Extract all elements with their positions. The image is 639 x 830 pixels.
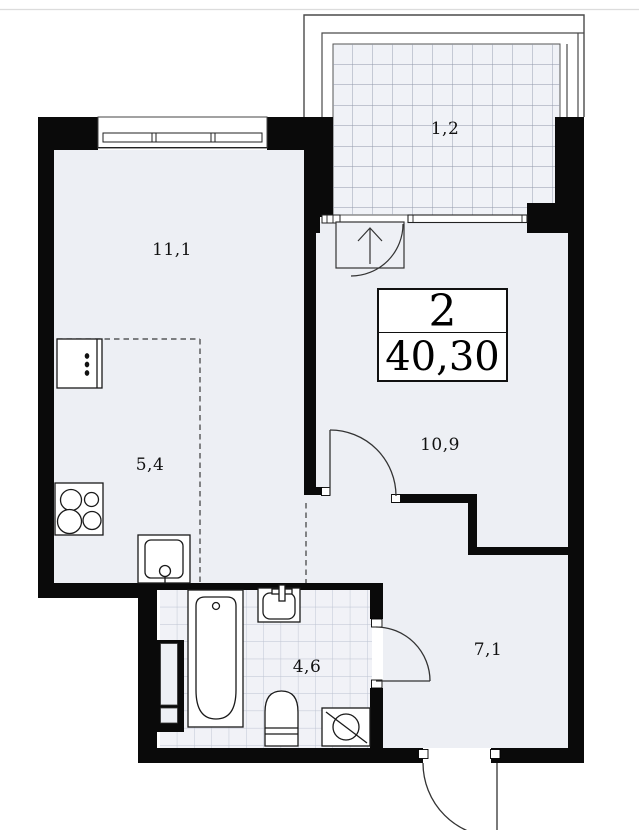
- apartment-info-box: 2 40,30: [377, 288, 508, 382]
- balcony-structure: [304, 15, 584, 215]
- kitchen-area-label: 5,4: [136, 455, 165, 475]
- hallway-area-label: 7,1: [474, 640, 503, 660]
- plumbing-shaft-insets: [161, 644, 178, 724]
- floor-plan-drawing: [0, 0, 639, 830]
- kitchen-sink: [138, 535, 190, 584]
- toilet: [265, 691, 298, 746]
- bathtub: [188, 590, 243, 727]
- floor-plan: 11,1 1,2 5,4 10,9 4,6 7,1 2 40,30: [0, 0, 639, 830]
- fridge: [57, 339, 102, 388]
- living-room-area-label: 11,1: [152, 240, 192, 260]
- stove: [55, 483, 103, 535]
- washbasin: [258, 585, 300, 622]
- room-count: 2: [379, 290, 506, 333]
- washing-machine: [322, 708, 370, 746]
- living-room-window: [98, 117, 267, 148]
- bedroom-area-label: 10,9: [420, 435, 460, 455]
- total-area: 40,30: [379, 333, 506, 381]
- entrance-door: [423, 763, 497, 830]
- balcony-door: [336, 222, 404, 276]
- balcony-area-label: 1,2: [431, 119, 460, 139]
- bathroom-area-label: 4,6: [293, 657, 322, 677]
